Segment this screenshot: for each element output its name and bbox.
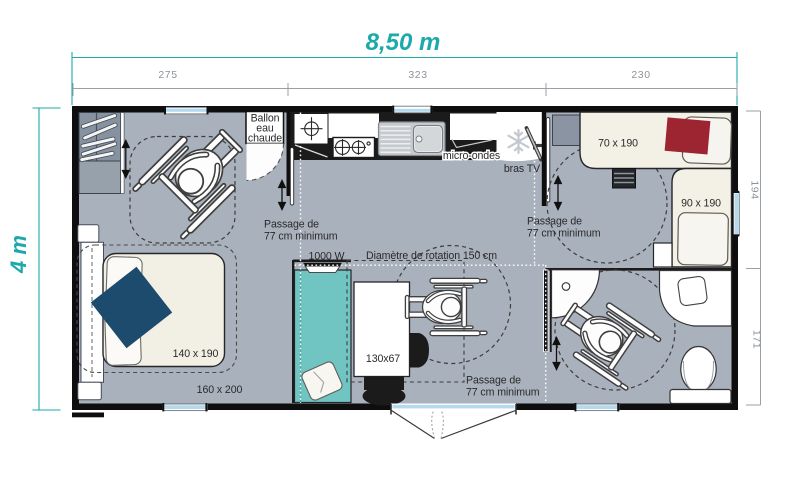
svg-text:4 m: 4 m (6, 235, 31, 274)
svg-text:194: 194 (749, 180, 761, 199)
svg-text:bras TV: bras TV (504, 163, 541, 175)
svg-text:77 cm minimum: 77 cm minimum (466, 387, 540, 399)
svg-text:Passage de: Passage de (264, 219, 319, 231)
svg-text:Passage de: Passage de (527, 216, 582, 228)
svg-text:140 x 190: 140 x 190 (173, 348, 219, 360)
svg-text:230: 230 (631, 69, 650, 81)
svg-text:Passage de: Passage de (466, 375, 521, 387)
svg-text:90 x 190: 90 x 190 (681, 198, 721, 210)
svg-text:77 cm minimum: 77 cm minimum (264, 231, 338, 243)
svg-text:130x67: 130x67 (366, 353, 400, 365)
svg-text:Diamètre de rotation 150 cm: Diamètre de rotation 150 cm (366, 250, 497, 262)
svg-text:323: 323 (408, 69, 427, 81)
svg-text:micro-ondes: micro-ondes (443, 150, 500, 162)
svg-text:160 x 200: 160 x 200 (197, 384, 243, 396)
svg-text:8,50 m: 8,50 m (366, 29, 441, 56)
svg-text:171: 171 (751, 330, 763, 349)
svg-text:275: 275 (158, 69, 177, 81)
svg-text:77 cm minimum: 77 cm minimum (527, 228, 601, 240)
svg-text:70 x 190: 70 x 190 (598, 138, 638, 150)
svg-text:chaude: chaude (248, 133, 282, 145)
svg-text:1000 W: 1000 W (309, 251, 345, 263)
